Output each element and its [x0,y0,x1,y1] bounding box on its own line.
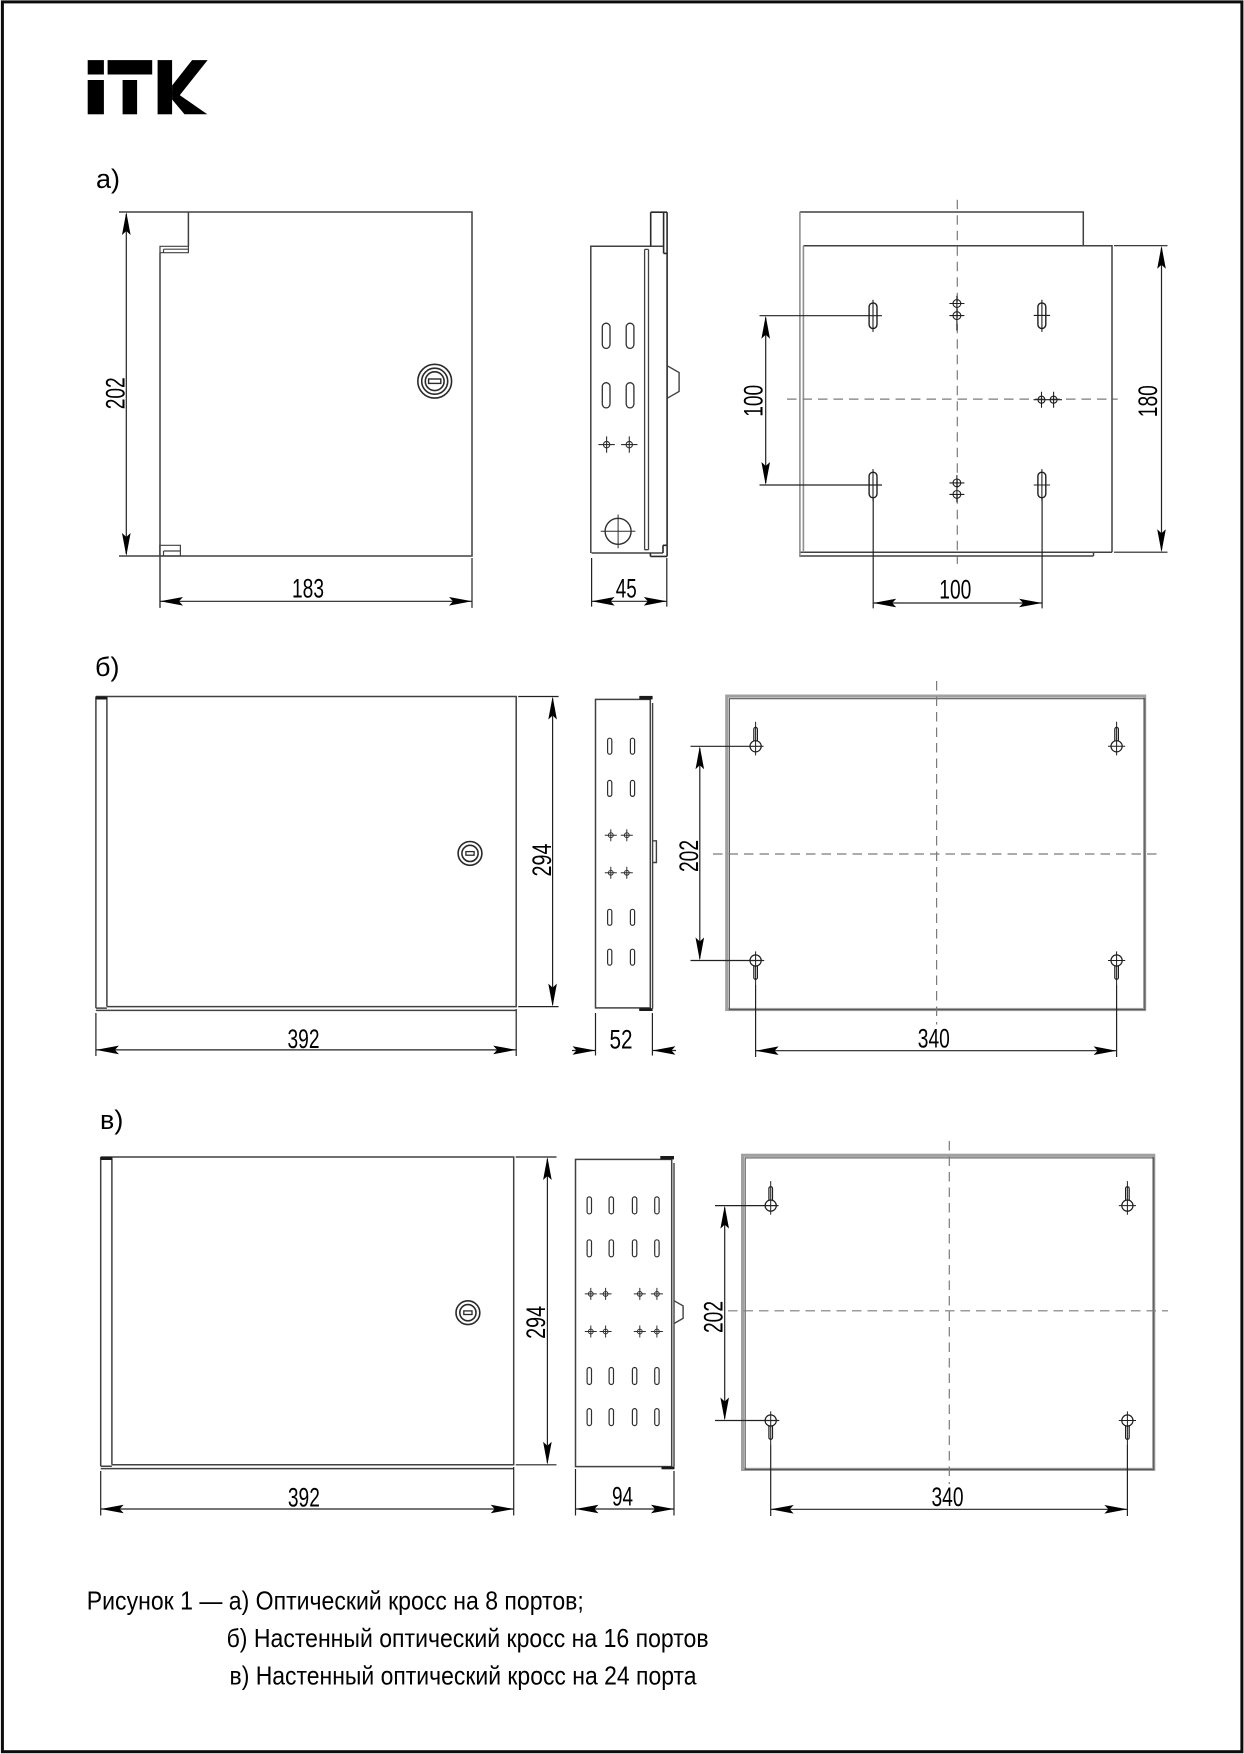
svg-text:180: 180 [1133,385,1163,417]
svg-text:294: 294 [527,844,557,877]
svg-text:45: 45 [616,573,637,603]
svg-text:100: 100 [739,385,769,417]
svg-text:в) Настенный оптический кросс: в) Настенный оптический кросс на 24 порт… [230,1660,697,1690]
svg-text:392: 392 [288,1483,320,1513]
svg-text:202: 202 [698,1301,728,1333]
svg-text:100: 100 [939,575,971,605]
svg-text:340: 340 [932,1482,964,1512]
svg-text:392: 392 [288,1024,320,1054]
svg-text:Рисунок 1 — а) Оптический крос: Рисунок 1 — а) Оптический кросс на 8 пор… [87,1586,584,1616]
svg-text:а): а) [96,164,120,194]
svg-text:202: 202 [101,377,131,409]
svg-text:94: 94 [612,1482,633,1512]
svg-text:294: 294 [521,1306,551,1339]
svg-text:183: 183 [292,573,324,603]
svg-text:в): в) [100,1105,123,1135]
svg-text:340: 340 [918,1024,950,1054]
svg-text:б) Настенный оптический кросс: б) Настенный оптический кросс на 16 порт… [227,1623,709,1653]
svg-text:б): б) [95,652,119,682]
svg-text:202: 202 [674,840,704,872]
svg-text:52: 52 [610,1024,633,1054]
